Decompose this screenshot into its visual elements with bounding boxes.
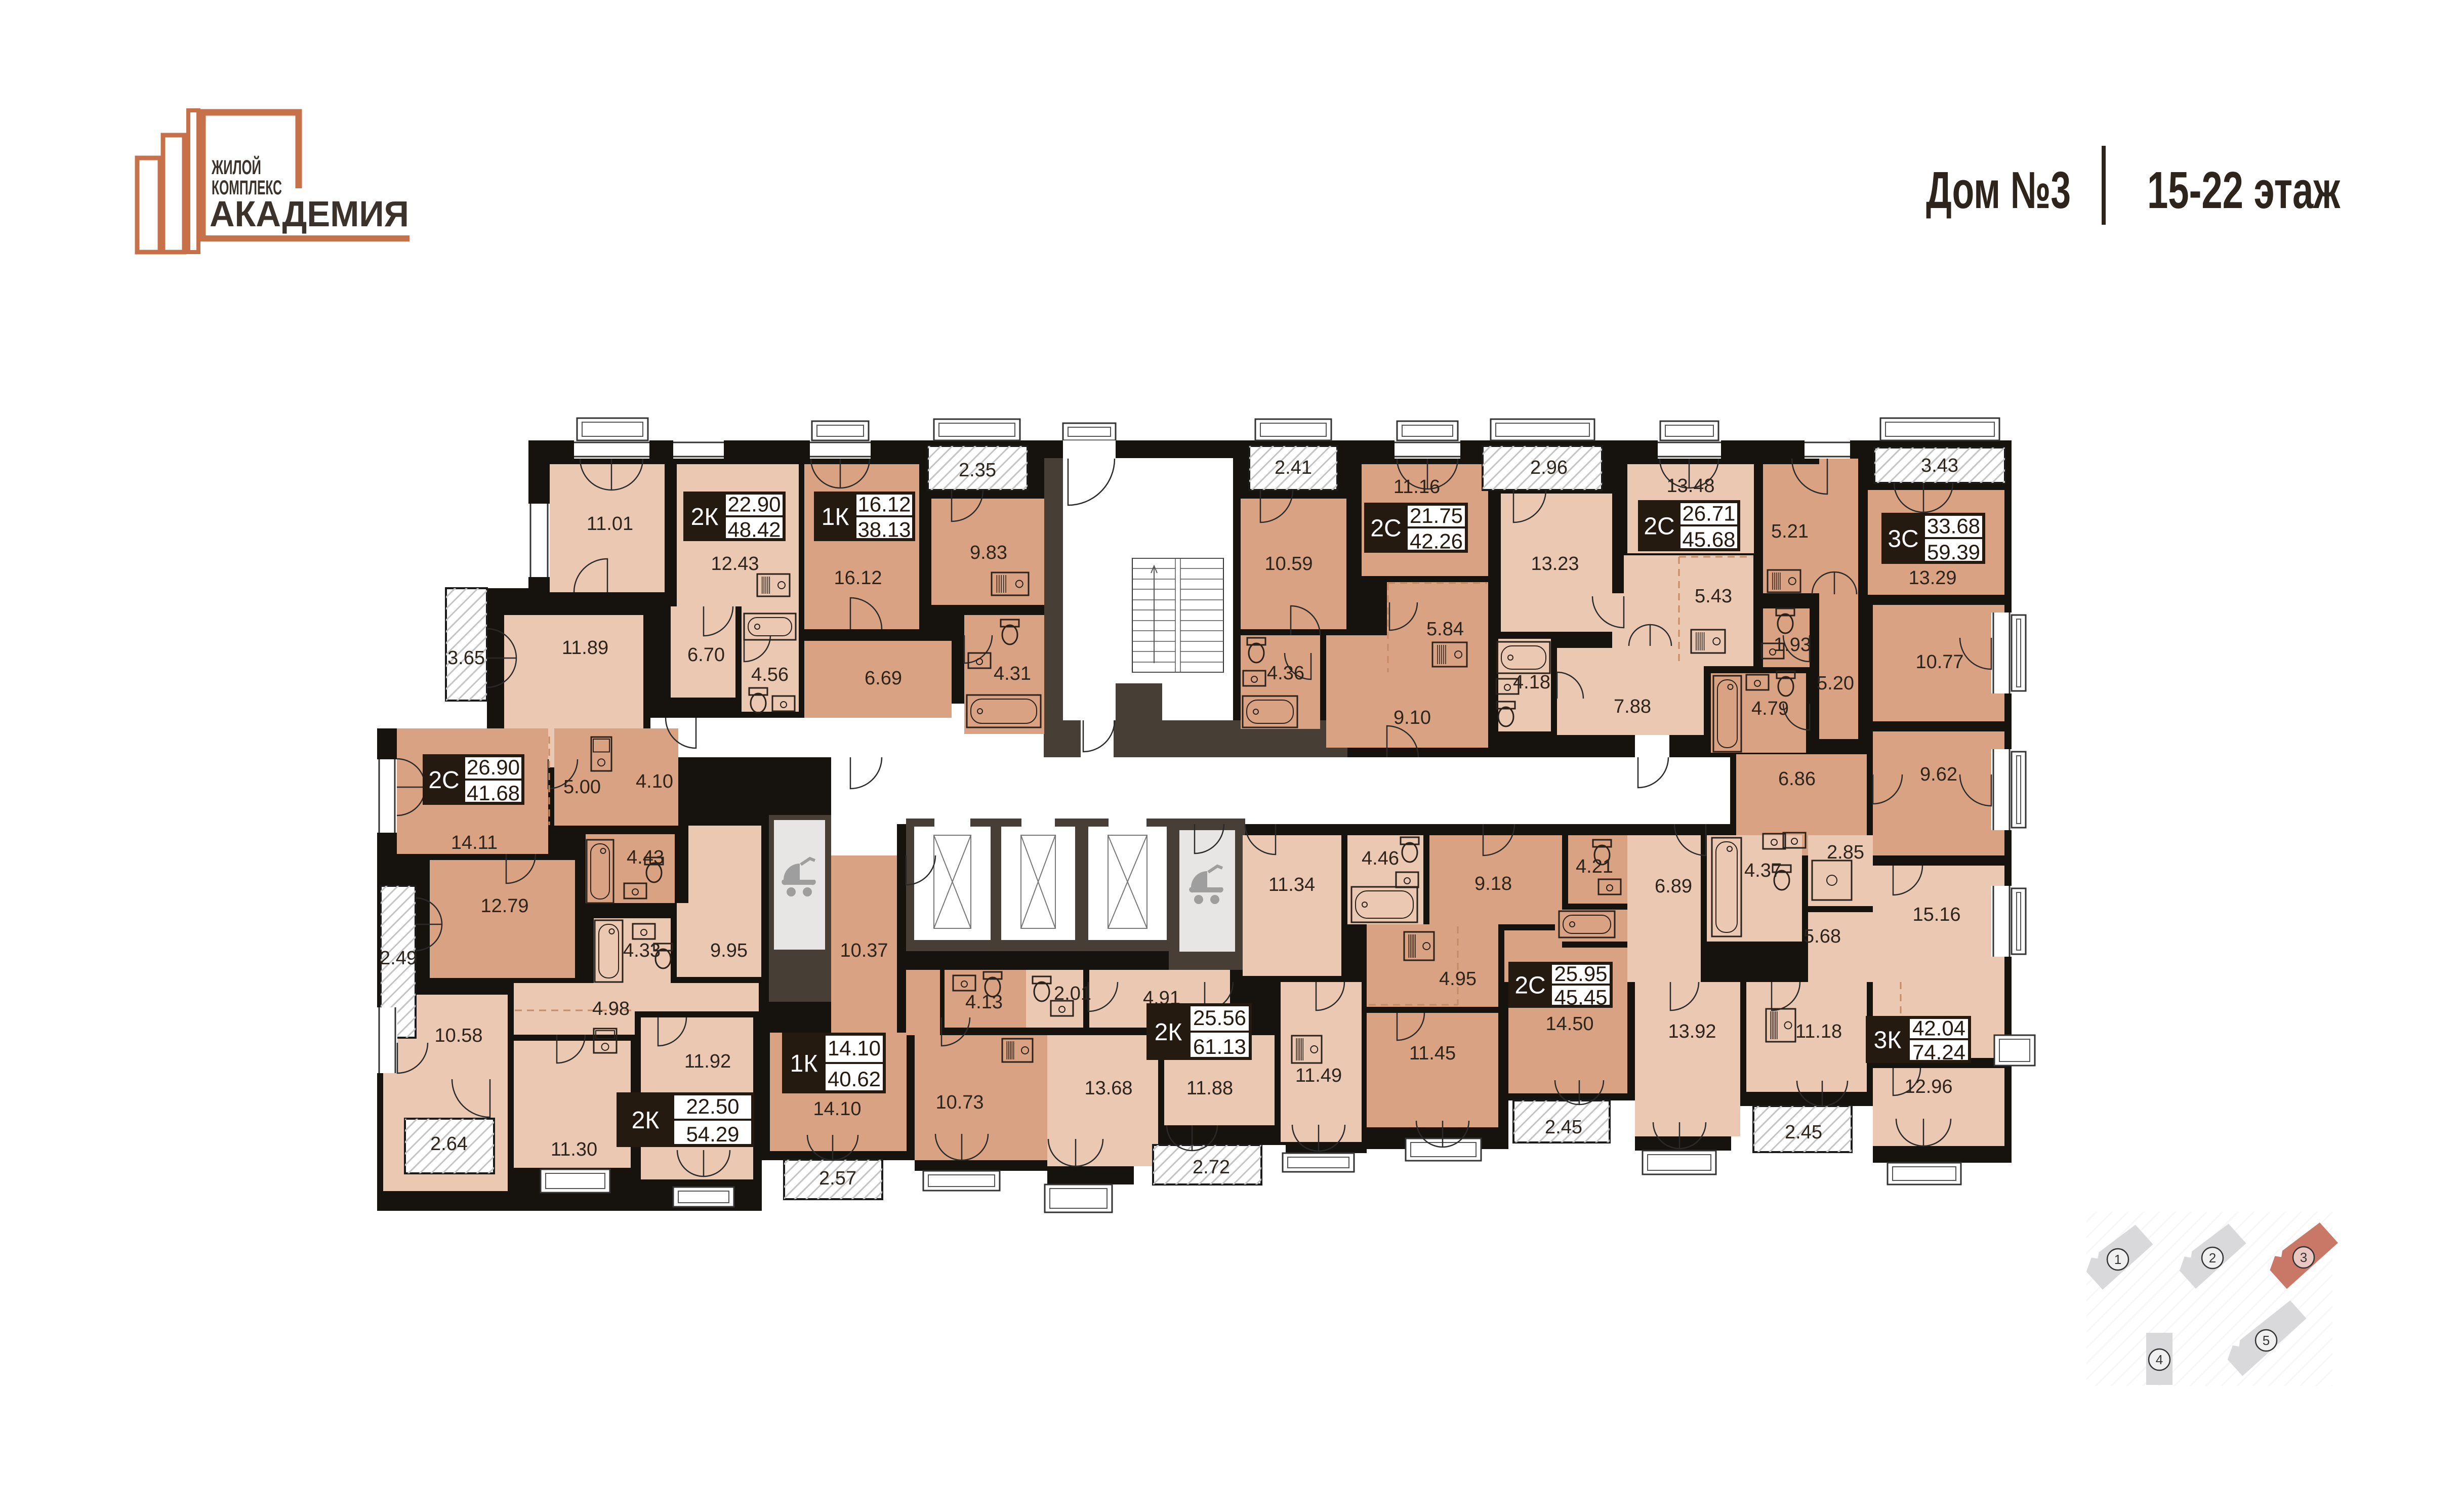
svg-text:74.24: 74.24 xyxy=(1912,1040,1965,1064)
svg-text:4.98: 4.98 xyxy=(592,998,630,1019)
svg-text:1: 1 xyxy=(2114,1252,2121,1267)
svg-text:4.18: 4.18 xyxy=(1513,672,1550,693)
svg-text:13.92: 13.92 xyxy=(1668,1021,1716,1042)
svg-text:2.96: 2.96 xyxy=(1530,457,1568,478)
svg-text:12.96: 12.96 xyxy=(1904,1076,1952,1097)
svg-text:10.37: 10.37 xyxy=(840,940,888,961)
svg-text:25.95: 25.95 xyxy=(1554,962,1607,986)
svg-text:2.45: 2.45 xyxy=(1545,1117,1582,1138)
svg-text:4.79: 4.79 xyxy=(1751,698,1789,719)
svg-text:1.93: 1.93 xyxy=(1774,634,1811,656)
svg-text:54.29: 54.29 xyxy=(686,1122,739,1146)
svg-text:13.68: 13.68 xyxy=(1084,1078,1132,1099)
svg-text:2.72: 2.72 xyxy=(1193,1157,1230,1178)
svg-text:45.45: 45.45 xyxy=(1554,985,1607,1009)
svg-text:3С: 3С xyxy=(1888,526,1918,553)
svg-text:11.01: 11.01 xyxy=(587,513,633,535)
svg-text:5.84: 5.84 xyxy=(1426,619,1464,640)
svg-text:4.46: 4.46 xyxy=(1362,848,1399,869)
svg-text:33.68: 33.68 xyxy=(1927,514,1980,538)
svg-text:5.68: 5.68 xyxy=(1804,926,1841,947)
svg-text:26.90: 26.90 xyxy=(467,755,520,779)
svg-text:22.90: 22.90 xyxy=(727,493,781,516)
svg-text:9.83: 9.83 xyxy=(970,542,1007,563)
svg-text:38.13: 38.13 xyxy=(857,518,911,542)
svg-text:3К: 3К xyxy=(1874,1027,1902,1054)
svg-text:4.95: 4.95 xyxy=(1439,968,1477,990)
svg-text:25.56: 25.56 xyxy=(1193,1006,1246,1030)
svg-text:9.18: 9.18 xyxy=(1474,873,1512,894)
svg-text:41.68: 41.68 xyxy=(467,781,520,805)
svg-text:Дом №3: Дом №3 xyxy=(1926,161,2071,219)
svg-text:12.79: 12.79 xyxy=(480,895,528,917)
svg-text:2С: 2С xyxy=(428,767,459,794)
svg-text:59.39: 59.39 xyxy=(1927,540,1980,564)
svg-text:4.56: 4.56 xyxy=(751,664,789,685)
svg-text:3.43: 3.43 xyxy=(1921,455,1958,476)
svg-text:2.45: 2.45 xyxy=(1785,1122,1822,1143)
svg-text:16.12: 16.12 xyxy=(834,567,882,589)
svg-text:42.26: 42.26 xyxy=(1410,529,1463,553)
svg-text:14.50: 14.50 xyxy=(1545,1013,1593,1035)
svg-text:4.13: 4.13 xyxy=(965,992,1003,1013)
svg-text:2К: 2К xyxy=(632,1107,660,1134)
svg-text:26.71: 26.71 xyxy=(1682,501,1735,525)
svg-text:11.30: 11.30 xyxy=(551,1139,597,1160)
svg-text:11.92: 11.92 xyxy=(684,1051,731,1072)
svg-text:2С: 2С xyxy=(1644,513,1674,540)
svg-text:9.62: 9.62 xyxy=(1920,764,1957,785)
svg-text:14.11: 14.11 xyxy=(451,832,498,853)
svg-text:4: 4 xyxy=(2156,1352,2163,1367)
svg-text:1К: 1К xyxy=(790,1050,818,1077)
svg-text:13.29: 13.29 xyxy=(1908,567,1956,589)
svg-text:4.31: 4.31 xyxy=(994,663,1031,684)
svg-text:13.23: 13.23 xyxy=(1531,553,1579,575)
svg-text:9.95: 9.95 xyxy=(710,940,748,961)
svg-text:2К: 2К xyxy=(1155,1019,1182,1046)
svg-text:5.00: 5.00 xyxy=(563,777,601,798)
svg-text:10.73: 10.73 xyxy=(935,1092,983,1113)
svg-text:11.49: 11.49 xyxy=(1295,1065,1342,1086)
svg-text:2С: 2С xyxy=(1514,972,1545,999)
svg-text:10.58: 10.58 xyxy=(434,1025,482,1046)
svg-text:4.33: 4.33 xyxy=(623,940,661,961)
svg-text:2.49: 2.49 xyxy=(380,948,417,969)
svg-text:2.01: 2.01 xyxy=(1054,983,1091,1004)
svg-text:ЖИЛОЙ: ЖИЛОЙ xyxy=(211,155,261,179)
svg-text:13.48: 13.48 xyxy=(1666,475,1714,497)
svg-text:5.20: 5.20 xyxy=(1817,673,1854,694)
svg-text:6.89: 6.89 xyxy=(1655,876,1692,897)
svg-text:11.88: 11.88 xyxy=(1186,1078,1233,1099)
svg-text:42.04: 42.04 xyxy=(1912,1016,1965,1040)
svg-text:2: 2 xyxy=(2209,1250,2216,1265)
svg-text:45.68: 45.68 xyxy=(1682,527,1735,551)
svg-text:40.62: 40.62 xyxy=(828,1067,881,1091)
svg-text:12.43: 12.43 xyxy=(711,553,759,575)
svg-text:61.13: 61.13 xyxy=(1193,1035,1246,1058)
svg-text:4.21: 4.21 xyxy=(1576,856,1613,877)
svg-text:4.10: 4.10 xyxy=(636,771,673,792)
svg-text:14.10: 14.10 xyxy=(828,1036,881,1060)
svg-text:6.86: 6.86 xyxy=(1778,768,1816,790)
svg-text:48.42: 48.42 xyxy=(727,518,781,542)
svg-text:2К: 2К xyxy=(691,504,719,530)
svg-text:14.10: 14.10 xyxy=(813,1098,861,1120)
svg-text:2С: 2С xyxy=(1370,515,1401,542)
svg-text:10.77: 10.77 xyxy=(1915,651,1963,673)
svg-text:2.35: 2.35 xyxy=(959,460,996,481)
svg-text:22.50: 22.50 xyxy=(686,1094,739,1118)
svg-text:2.64: 2.64 xyxy=(430,1133,468,1155)
svg-text:6.69: 6.69 xyxy=(865,668,902,689)
svg-text:16.12: 16.12 xyxy=(857,493,911,516)
svg-text:2.57: 2.57 xyxy=(819,1168,856,1189)
svg-text:5.43: 5.43 xyxy=(1695,586,1732,607)
svg-text:2.41: 2.41 xyxy=(1275,457,1312,478)
svg-text:15-22 этаж: 15-22 этаж xyxy=(2147,161,2341,219)
svg-text:6.70: 6.70 xyxy=(687,644,725,666)
svg-text:11.34: 11.34 xyxy=(1268,874,1315,895)
svg-text:11.45: 11.45 xyxy=(1409,1043,1456,1064)
svg-text:10.59: 10.59 xyxy=(1264,553,1313,575)
svg-text:4.36: 4.36 xyxy=(1267,663,1304,684)
svg-text:7.88: 7.88 xyxy=(1614,696,1651,717)
svg-text:2.85: 2.85 xyxy=(1827,842,1864,863)
svg-text:3.65: 3.65 xyxy=(447,647,485,669)
svg-text:1К: 1К xyxy=(822,504,849,530)
svg-text:5: 5 xyxy=(2263,1333,2270,1348)
svg-text:4.43: 4.43 xyxy=(627,847,664,868)
svg-text:11.18: 11.18 xyxy=(1795,1021,1842,1042)
svg-text:3: 3 xyxy=(2300,1250,2307,1265)
svg-text:21.75: 21.75 xyxy=(1410,504,1463,527)
svg-text:5.21: 5.21 xyxy=(1771,521,1809,542)
svg-text:9.10: 9.10 xyxy=(1394,707,1431,728)
svg-text:15.16: 15.16 xyxy=(1912,904,1960,925)
svg-text:4.37: 4.37 xyxy=(1744,860,1782,881)
svg-text:11.16: 11.16 xyxy=(1394,476,1440,498)
svg-text:АКАДЕМИЯ: АКАДЕМИЯ xyxy=(210,194,409,234)
svg-text:11.89: 11.89 xyxy=(562,637,608,659)
